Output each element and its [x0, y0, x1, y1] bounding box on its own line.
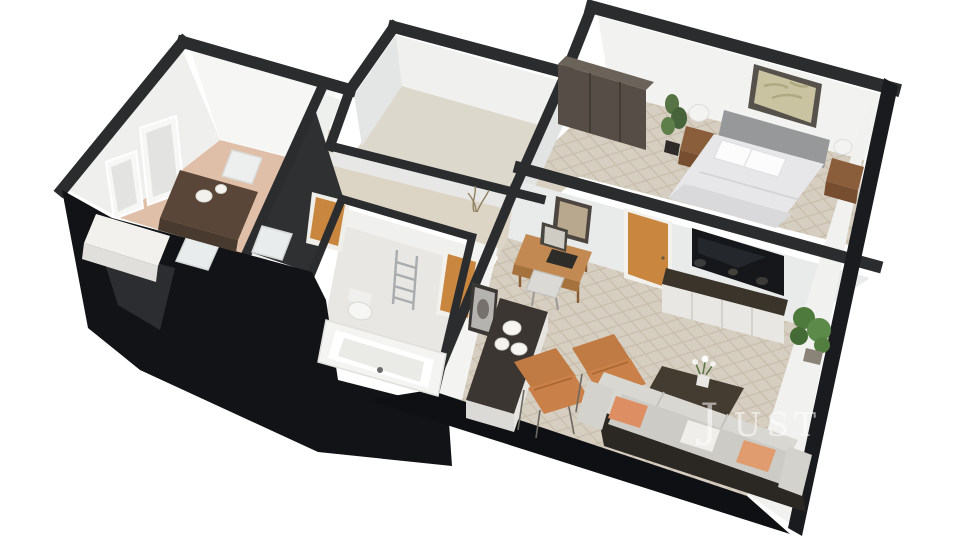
floorplan-canvas: J UST O [0, 0, 960, 540]
floorplan-3d-render: J UST O [0, 0, 960, 540]
flower [702, 356, 709, 363]
flower [692, 359, 698, 365]
table-vase [196, 190, 212, 202]
bathtub-drain [377, 367, 383, 373]
table-lamp [834, 140, 852, 155]
art-figure [477, 299, 489, 319]
jug-vase [503, 321, 521, 335]
flower [710, 361, 716, 367]
console-decor-bowl [728, 269, 738, 276]
table-lamp [689, 105, 709, 122]
watermark-letters: UST [734, 405, 821, 444]
console-decor-bowl [756, 277, 768, 285]
console-decor-bowl [694, 259, 706, 267]
jug-vase [511, 343, 527, 355]
watermark-letter: J [696, 393, 723, 447]
watermark-letter: O [831, 393, 874, 447]
door-handle [661, 256, 664, 259]
jug-vase [495, 338, 509, 350]
table-vase [216, 185, 227, 194]
